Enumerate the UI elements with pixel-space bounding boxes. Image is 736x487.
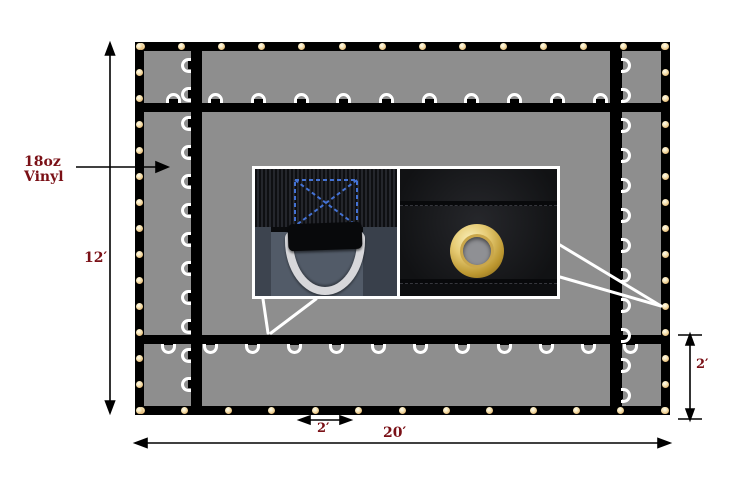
- d-ring-tab: [613, 241, 623, 249]
- d-ring-tab: [510, 99, 519, 108]
- d-ring-tab: [188, 380, 198, 388]
- grommet: [136, 251, 143, 258]
- d-ring-tab: [613, 91, 623, 99]
- grommet: [355, 407, 362, 414]
- grommet: [620, 43, 627, 50]
- d-ring-tab: [332, 336, 341, 345]
- grommet: [662, 121, 669, 128]
- d-ring-tab: [188, 351, 198, 359]
- grommet: [486, 407, 493, 414]
- grommet: [662, 329, 669, 336]
- grommet: [662, 43, 669, 50]
- grommet: [225, 407, 232, 414]
- grommet: [580, 43, 587, 50]
- d-ring-tab: [188, 206, 198, 214]
- d-ring: [203, 344, 218, 354]
- grommet: [662, 381, 669, 388]
- hem-edge: [400, 284, 557, 296]
- d-ring-tab: [297, 99, 306, 108]
- d-ring-tab: [613, 151, 623, 159]
- grommet: [662, 147, 669, 154]
- d-ring-tab: [211, 99, 220, 108]
- d-ring-tab: [188, 264, 198, 272]
- grommet: [136, 329, 143, 336]
- grommet: [268, 407, 275, 414]
- grommet: [178, 43, 185, 50]
- d-ring-tab: [458, 336, 467, 345]
- d-ring-tab: [542, 336, 551, 345]
- grommet: [662, 407, 669, 414]
- d-ring-tab: [374, 336, 383, 345]
- d-ring-tab: [596, 99, 605, 108]
- d-ring-tab: [613, 121, 623, 129]
- grommet: [136, 355, 143, 362]
- grommet: [662, 251, 669, 258]
- grommet: [298, 43, 305, 50]
- grommet: [136, 303, 143, 310]
- d-ring-tab: [188, 148, 198, 156]
- grommet: [459, 43, 466, 50]
- d-ring-tab: [416, 336, 425, 345]
- d-ring-tab: [613, 391, 623, 399]
- grommet: [419, 43, 426, 50]
- grommet: [136, 69, 143, 76]
- grommet: [258, 43, 265, 50]
- grommet: [399, 407, 406, 414]
- grommet: [136, 95, 143, 102]
- d-ring: [371, 344, 386, 354]
- inset-photo: [252, 166, 560, 299]
- brass-grommet-icon: [450, 224, 504, 278]
- d-ring-tab: [613, 361, 623, 369]
- d-ring: [581, 344, 596, 354]
- width-dimension-label: 20′: [383, 426, 406, 441]
- grommet: [136, 199, 143, 206]
- tarp-product-diagram: 18oz Vinyl 12′ 20′ 2′ 2′: [0, 0, 736, 487]
- material-label-line2: Vinyl: [24, 170, 64, 185]
- grommet: [379, 43, 386, 50]
- material-label: 18oz Vinyl: [24, 155, 64, 185]
- d-ring-tab: [169, 99, 178, 108]
- d-ring: [623, 344, 638, 354]
- d-ring: [287, 344, 302, 354]
- grommet: [136, 147, 143, 154]
- d-ring-tab: [188, 90, 198, 98]
- grommet-closeup-photo: [400, 169, 557, 296]
- vinyl-shade: [363, 227, 397, 296]
- vinyl-shade: [255, 227, 271, 296]
- d-ring-tab: [290, 336, 299, 345]
- d-ring: [245, 344, 260, 354]
- grommet: [662, 355, 669, 362]
- grommet: [662, 95, 669, 102]
- d-ring-tab: [206, 336, 215, 345]
- grommet: [662, 199, 669, 206]
- d-ring-tab: [188, 119, 198, 127]
- grommet: [662, 225, 669, 232]
- grommet: [530, 407, 537, 414]
- grommet: [136, 173, 143, 180]
- grommet: [662, 69, 669, 76]
- d-ring-tab: [382, 99, 391, 108]
- grommet: [136, 225, 143, 232]
- d-ring-tab: [254, 99, 263, 108]
- d-ring-tab: [613, 181, 623, 189]
- d-ring-tab: [613, 301, 623, 309]
- grommet: [443, 407, 450, 414]
- d-ring: [497, 344, 512, 354]
- grommet: [312, 407, 319, 414]
- material-label-line1: 18oz: [24, 155, 64, 170]
- grommet: [136, 43, 143, 50]
- d-ring-closeup-photo: [255, 169, 397, 296]
- grommet: [136, 121, 143, 128]
- d-ring-tab: [613, 331, 623, 339]
- grommet: [218, 43, 225, 50]
- grommet: [181, 407, 188, 414]
- d-ring-tab: [248, 336, 257, 345]
- height-dimension-label: 12′: [84, 251, 107, 266]
- d-ring: [413, 344, 428, 354]
- grommet: [617, 407, 624, 414]
- d-ring-tab: [188, 235, 198, 243]
- d-ring-webbing-tab: [288, 222, 363, 252]
- grommet-hole: [463, 237, 491, 265]
- grommet: [136, 277, 143, 284]
- d-ring-tab: [188, 177, 198, 185]
- grommet: [500, 43, 507, 50]
- d-ring-tab: [339, 99, 348, 108]
- d-ring-tab: [500, 336, 509, 345]
- d-ring-tab: [613, 61, 623, 69]
- d-ring: [161, 344, 176, 354]
- d-ring: [329, 344, 344, 354]
- d-ring-tab: [188, 61, 198, 69]
- grommet: [662, 303, 669, 310]
- edge-offset-label: 2′: [696, 357, 708, 372]
- grommet: [573, 407, 580, 414]
- grommet: [662, 277, 669, 284]
- box-x-stitch-icon: [293, 178, 359, 228]
- d-ring-tab: [584, 336, 593, 345]
- grommet: [662, 173, 669, 180]
- d-ring-tab: [425, 99, 434, 108]
- d-ring-tab: [188, 322, 198, 330]
- d-ring-tab: [164, 336, 173, 345]
- stitch-seam: [400, 201, 557, 206]
- d-ring: [539, 344, 554, 354]
- grommet-spacing-label: 2′: [317, 421, 329, 436]
- grommet: [339, 43, 346, 50]
- d-ring-tab: [613, 211, 623, 219]
- d-ring-tab: [467, 99, 476, 108]
- d-ring: [455, 344, 470, 354]
- d-ring-tab: [613, 271, 623, 279]
- grommet: [540, 43, 547, 50]
- grommet: [136, 407, 143, 414]
- d-ring-tab: [188, 293, 198, 301]
- d-ring-tab: [553, 99, 562, 108]
- grommet: [136, 381, 143, 388]
